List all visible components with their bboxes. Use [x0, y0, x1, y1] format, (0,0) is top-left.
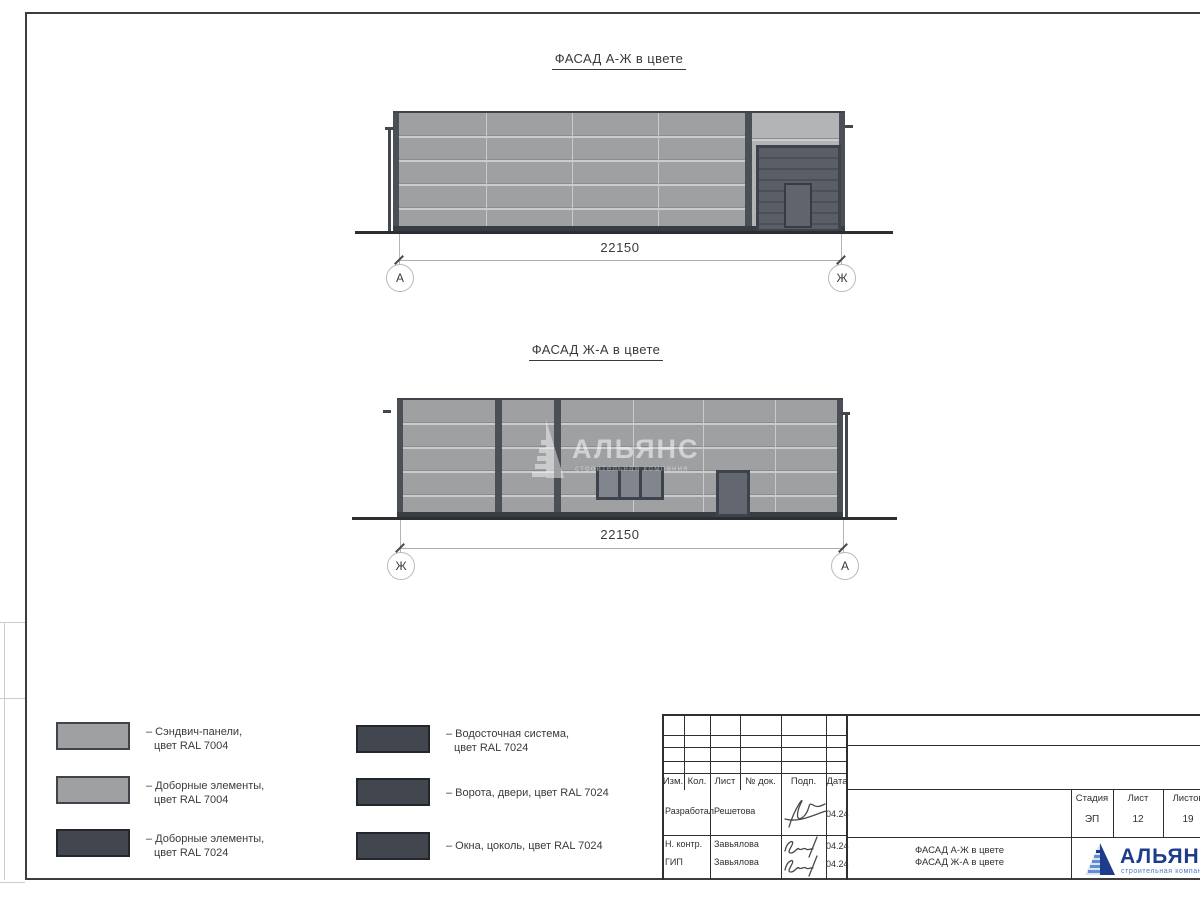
ground-line [352, 517, 897, 520]
facade2-title: ФАСАД Ж-А в цвете [370, 342, 822, 361]
legend-label: – Водосточная система,цвет RAL 7024 [446, 727, 569, 755]
stage-label: Стадия [1071, 793, 1113, 804]
divider-post [745, 111, 752, 231]
corner-post [397, 398, 403, 517]
legend-label: – Сэндвич-панели,цвет RAL 7004 [146, 725, 242, 753]
legend-swatch [56, 776, 130, 804]
divider-post [554, 398, 561, 517]
downspout [388, 128, 391, 231]
titleblock-col-izm: Изм. [662, 776, 684, 787]
signer-name: Завьялова [714, 857, 759, 867]
titleblock-col-podp: Подп. [781, 776, 826, 787]
signer-date: 04.24 [826, 809, 848, 819]
signature [783, 855, 825, 882]
window [596, 467, 664, 500]
sheets-label: Листов [1163, 793, 1200, 804]
margin-mark [4, 622, 5, 880]
downspout [383, 410, 391, 413]
dimension-line [399, 260, 841, 261]
axis-letter: Ж [836, 271, 847, 285]
frame-left [25, 12, 27, 880]
margin-mark [0, 882, 25, 883]
axis-letter: А [841, 559, 849, 573]
company-subtitle: строительная компания [1121, 868, 1200, 875]
window-pane [642, 470, 661, 497]
downspout [845, 125, 853, 128]
legend-label: – Доборные элементы,цвет RAL 7024 [146, 832, 264, 860]
company-name: АЛЬЯНС [1120, 845, 1200, 869]
legend-swatch [356, 832, 430, 860]
divider-post [495, 398, 502, 517]
axis-bubble: Ж [828, 264, 856, 292]
titleblock-col-data: Дата [826, 776, 848, 787]
corner-post [837, 398, 843, 517]
legend-label: – Ворота, двери, цвет RAL 7024 [446, 786, 609, 800]
ground-line [355, 231, 893, 234]
drawing-sheet: ФАСАД А-Ж в цвете 22150 А Ж ФАСАД Ж-А в … [0, 0, 1200, 900]
facade2-drawing [397, 398, 843, 517]
legend-swatch [56, 722, 130, 750]
signer-date: 04.24 [826, 841, 848, 851]
frame-bottom [25, 878, 1200, 880]
signer-role: Н. контр. [665, 839, 702, 849]
legend-swatch [356, 725, 430, 753]
facade1-drawing [393, 111, 845, 231]
stage-value: ЭП [1071, 814, 1113, 825]
legend-swatch [56, 829, 130, 857]
frame-top [25, 12, 1200, 14]
signer-role: ГИП [665, 857, 683, 867]
dimension-label: 22150 [520, 240, 720, 255]
legend-swatch [356, 778, 430, 806]
titleblock-col-list: Лист [710, 776, 740, 787]
facade1-title: ФАСАД А-Ж в цвете [393, 51, 845, 70]
legend-label: – Доборные элементы,цвет RAL 7004 [146, 779, 264, 807]
signer-date: 04.24 [826, 859, 848, 869]
signature [783, 793, 827, 838]
doc-title-line1: ФАСАД А-Ж в цвете [848, 845, 1071, 856]
axis-bubble: А [831, 552, 859, 580]
sheets-value: 19 [1163, 814, 1200, 825]
dimension-line [400, 548, 843, 549]
doc-title-line2: ФАСАД Ж-А в цвете [848, 857, 1071, 868]
dimension-label: 22150 [520, 527, 720, 542]
sheet-label: Лист [1113, 793, 1163, 804]
sheet-value: 12 [1113, 814, 1163, 825]
extension-line [841, 234, 842, 268]
signer-name: Завьялова [714, 839, 759, 849]
entrance-door [716, 470, 750, 517]
axis-bubble: А [386, 264, 414, 292]
axis-letter: Ж [395, 559, 406, 573]
legend-label: – Окна, цоколь, цвет RAL 7024 [446, 839, 603, 853]
window-pane [621, 470, 640, 497]
extension-line [399, 234, 400, 268]
window-pane [599, 470, 618, 497]
titleblock-col-ndok: № док. [740, 776, 781, 787]
signer-role: Разработал [665, 806, 714, 816]
company-logo-icon [1085, 843, 1115, 880]
downspout [845, 414, 848, 517]
wicket-door [784, 183, 812, 228]
axis-bubble: Ж [387, 552, 415, 580]
axis-letter: А [396, 271, 404, 285]
titleblock-col-kol: Кол. [684, 776, 710, 787]
signer-name: Решетова [714, 806, 755, 816]
